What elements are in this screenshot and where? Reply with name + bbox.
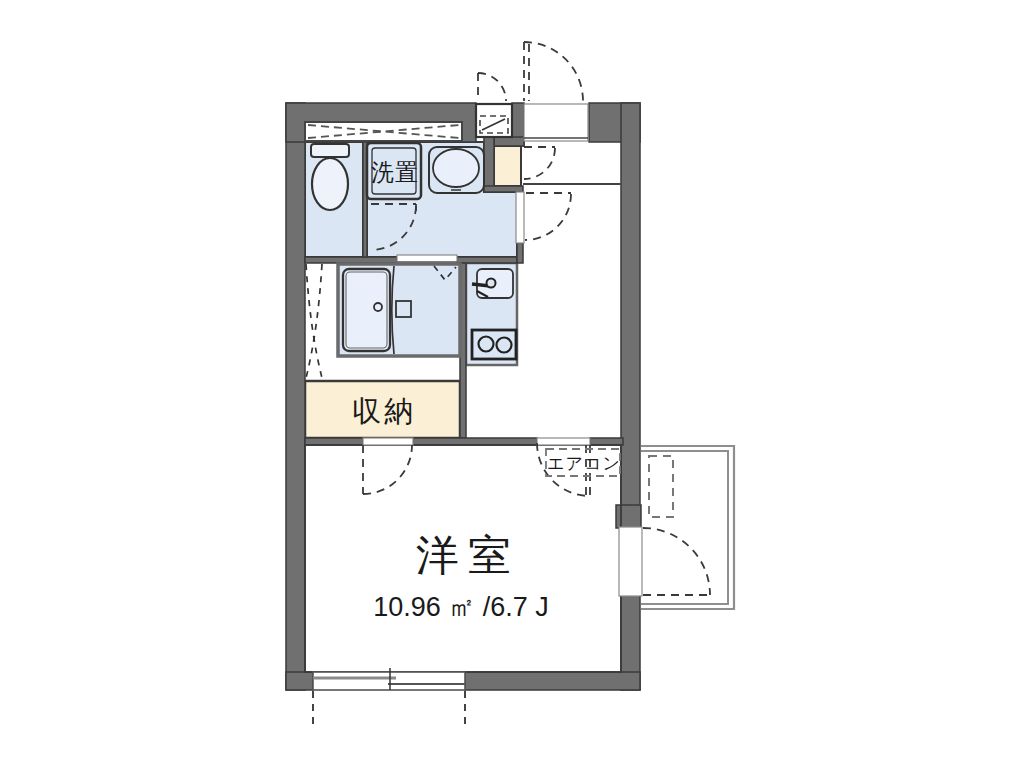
storage-door-arc [363, 445, 412, 494]
wall-right-upper [621, 103, 640, 507]
bath-door-handle [396, 301, 411, 317]
balcony [641, 446, 734, 609]
wall-right-bump [616, 505, 641, 528]
washroom-door-arc [525, 194, 571, 240]
washer-label: 洗置 [371, 159, 419, 185]
balcony-door-arc [643, 528, 710, 595]
storage-doorway [363, 438, 413, 445]
ps-box [476, 104, 512, 137]
floorplan-canvas: 洗置 収納 エアコン 洋室 10.96 ㎡ /6.7 J [0, 0, 1019, 774]
toilet-tank [311, 144, 349, 157]
bath-fold-door-curve-2 [306, 264, 322, 378]
room-doorway [537, 438, 590, 445]
wall-room-top-b [413, 438, 537, 445]
entrance-closet [494, 146, 521, 186]
wall-washroom-right [517, 243, 523, 263]
washroom-doorway [516, 192, 524, 243]
kitchen-faucet-head [487, 279, 496, 288]
room-label: 洋室 [416, 531, 520, 579]
balcony-doorway [619, 527, 642, 596]
bottom-window [313, 672, 465, 690]
wall-closet-left [484, 137, 494, 192]
wall-room-top-c [590, 438, 623, 445]
ps-door-arc [478, 73, 506, 101]
bathtub [343, 269, 390, 351]
balcony-outer-rail [641, 446, 734, 609]
room-area-label: 10.96 ㎡ /6.7 J [373, 592, 549, 622]
wall-bottom-a [286, 672, 313, 690]
top-hatch-window [305, 122, 462, 141]
basin-bowl [433, 149, 479, 187]
wall-room-top-a [305, 438, 363, 445]
wall-bottom-b [465, 672, 640, 690]
wall-under-ps [494, 137, 524, 146]
closet-door-arc [524, 148, 555, 179]
bath-drain [374, 303, 382, 311]
aircon-label: エアコン [547, 454, 621, 473]
wall-left [286, 103, 305, 690]
storage-label: 収納 [352, 395, 416, 427]
bath-fold-door-curve-1 [306, 264, 322, 378]
wall-closet-bottom [484, 186, 523, 192]
balcony-equipment-outline [649, 456, 673, 517]
balcony-inner-rail [641, 451, 728, 604]
wall-washroom-bottom-b [457, 257, 517, 263]
wall-washroom-bottom-a [305, 257, 397, 263]
entrance-doorway [524, 104, 588, 141]
toilet-bowl [312, 158, 348, 210]
floorplan-svg: 洗置 収納 エアコン 洋室 10.96 ㎡ /6.7 J [0, 0, 1019, 774]
entrance-door-arc [524, 42, 583, 101]
